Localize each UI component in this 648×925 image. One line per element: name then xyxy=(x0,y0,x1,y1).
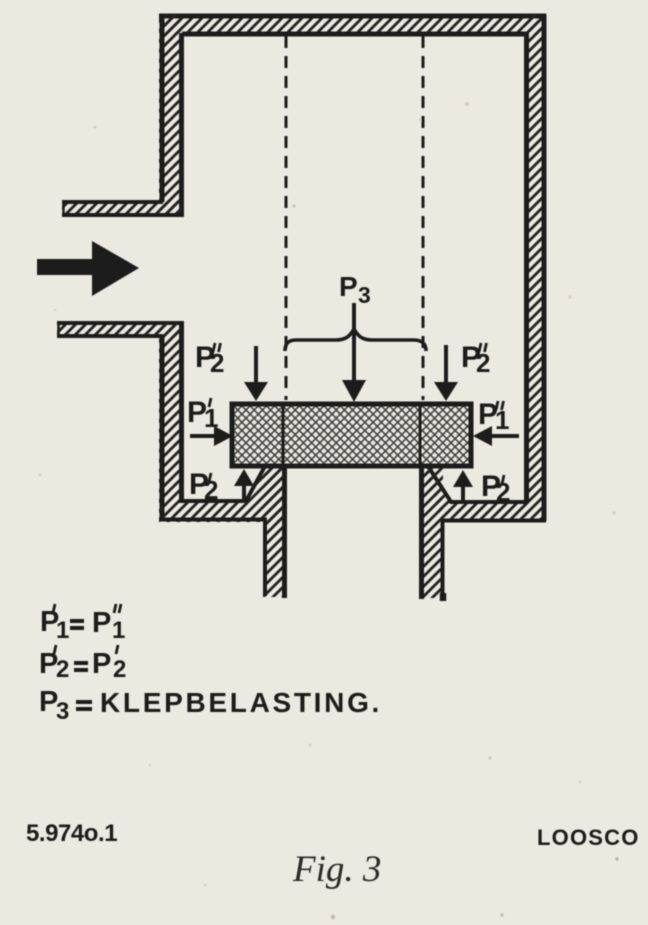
svg-text:P: P xyxy=(339,271,358,302)
svg-text:2: 2 xyxy=(56,656,69,683)
svg-text:3: 3 xyxy=(56,698,69,725)
svg-text:1: 1 xyxy=(112,617,125,644)
svg-text:2: 2 xyxy=(476,348,490,378)
svg-text:2: 2 xyxy=(204,475,218,505)
svg-text:Fig. 3: Fig. 3 xyxy=(292,849,381,890)
svg-text:5.974o.1: 5.974o.1 xyxy=(26,820,117,847)
svg-text:2: 2 xyxy=(210,348,224,378)
svg-text:3: 3 xyxy=(358,282,371,308)
svg-text:1: 1 xyxy=(56,617,69,644)
svg-text:2: 2 xyxy=(113,656,126,683)
svg-text:KLEPBELASTING.: KLEPBELASTING. xyxy=(100,687,382,718)
svg-text:P: P xyxy=(92,648,111,680)
svg-text:LOOSCO: LOOSCO xyxy=(537,825,640,850)
svg-text:P: P xyxy=(92,607,111,639)
